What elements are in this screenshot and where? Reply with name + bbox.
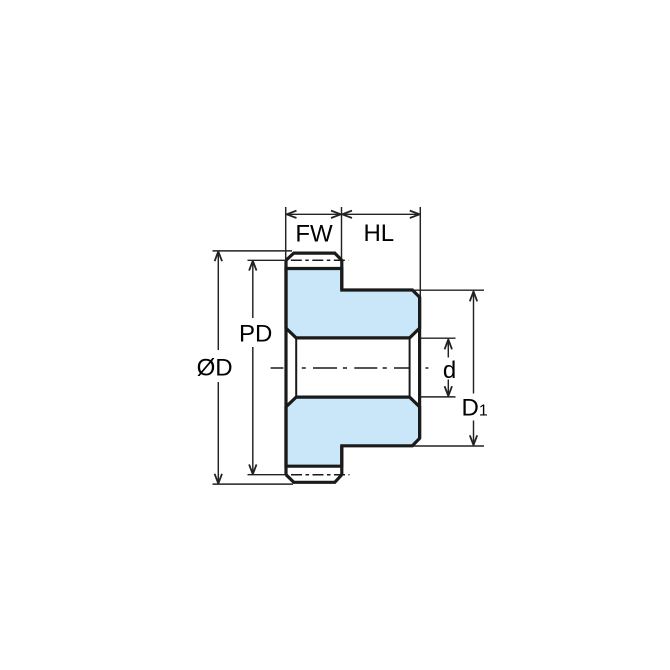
svg-text:HL: HL [363, 220, 394, 247]
svg-text:FW: FW [295, 221, 333, 248]
svg-text:ØD: ØD [197, 355, 233, 382]
svg-text:d: d [443, 357, 456, 384]
svg-text:PD: PD [239, 321, 272, 348]
